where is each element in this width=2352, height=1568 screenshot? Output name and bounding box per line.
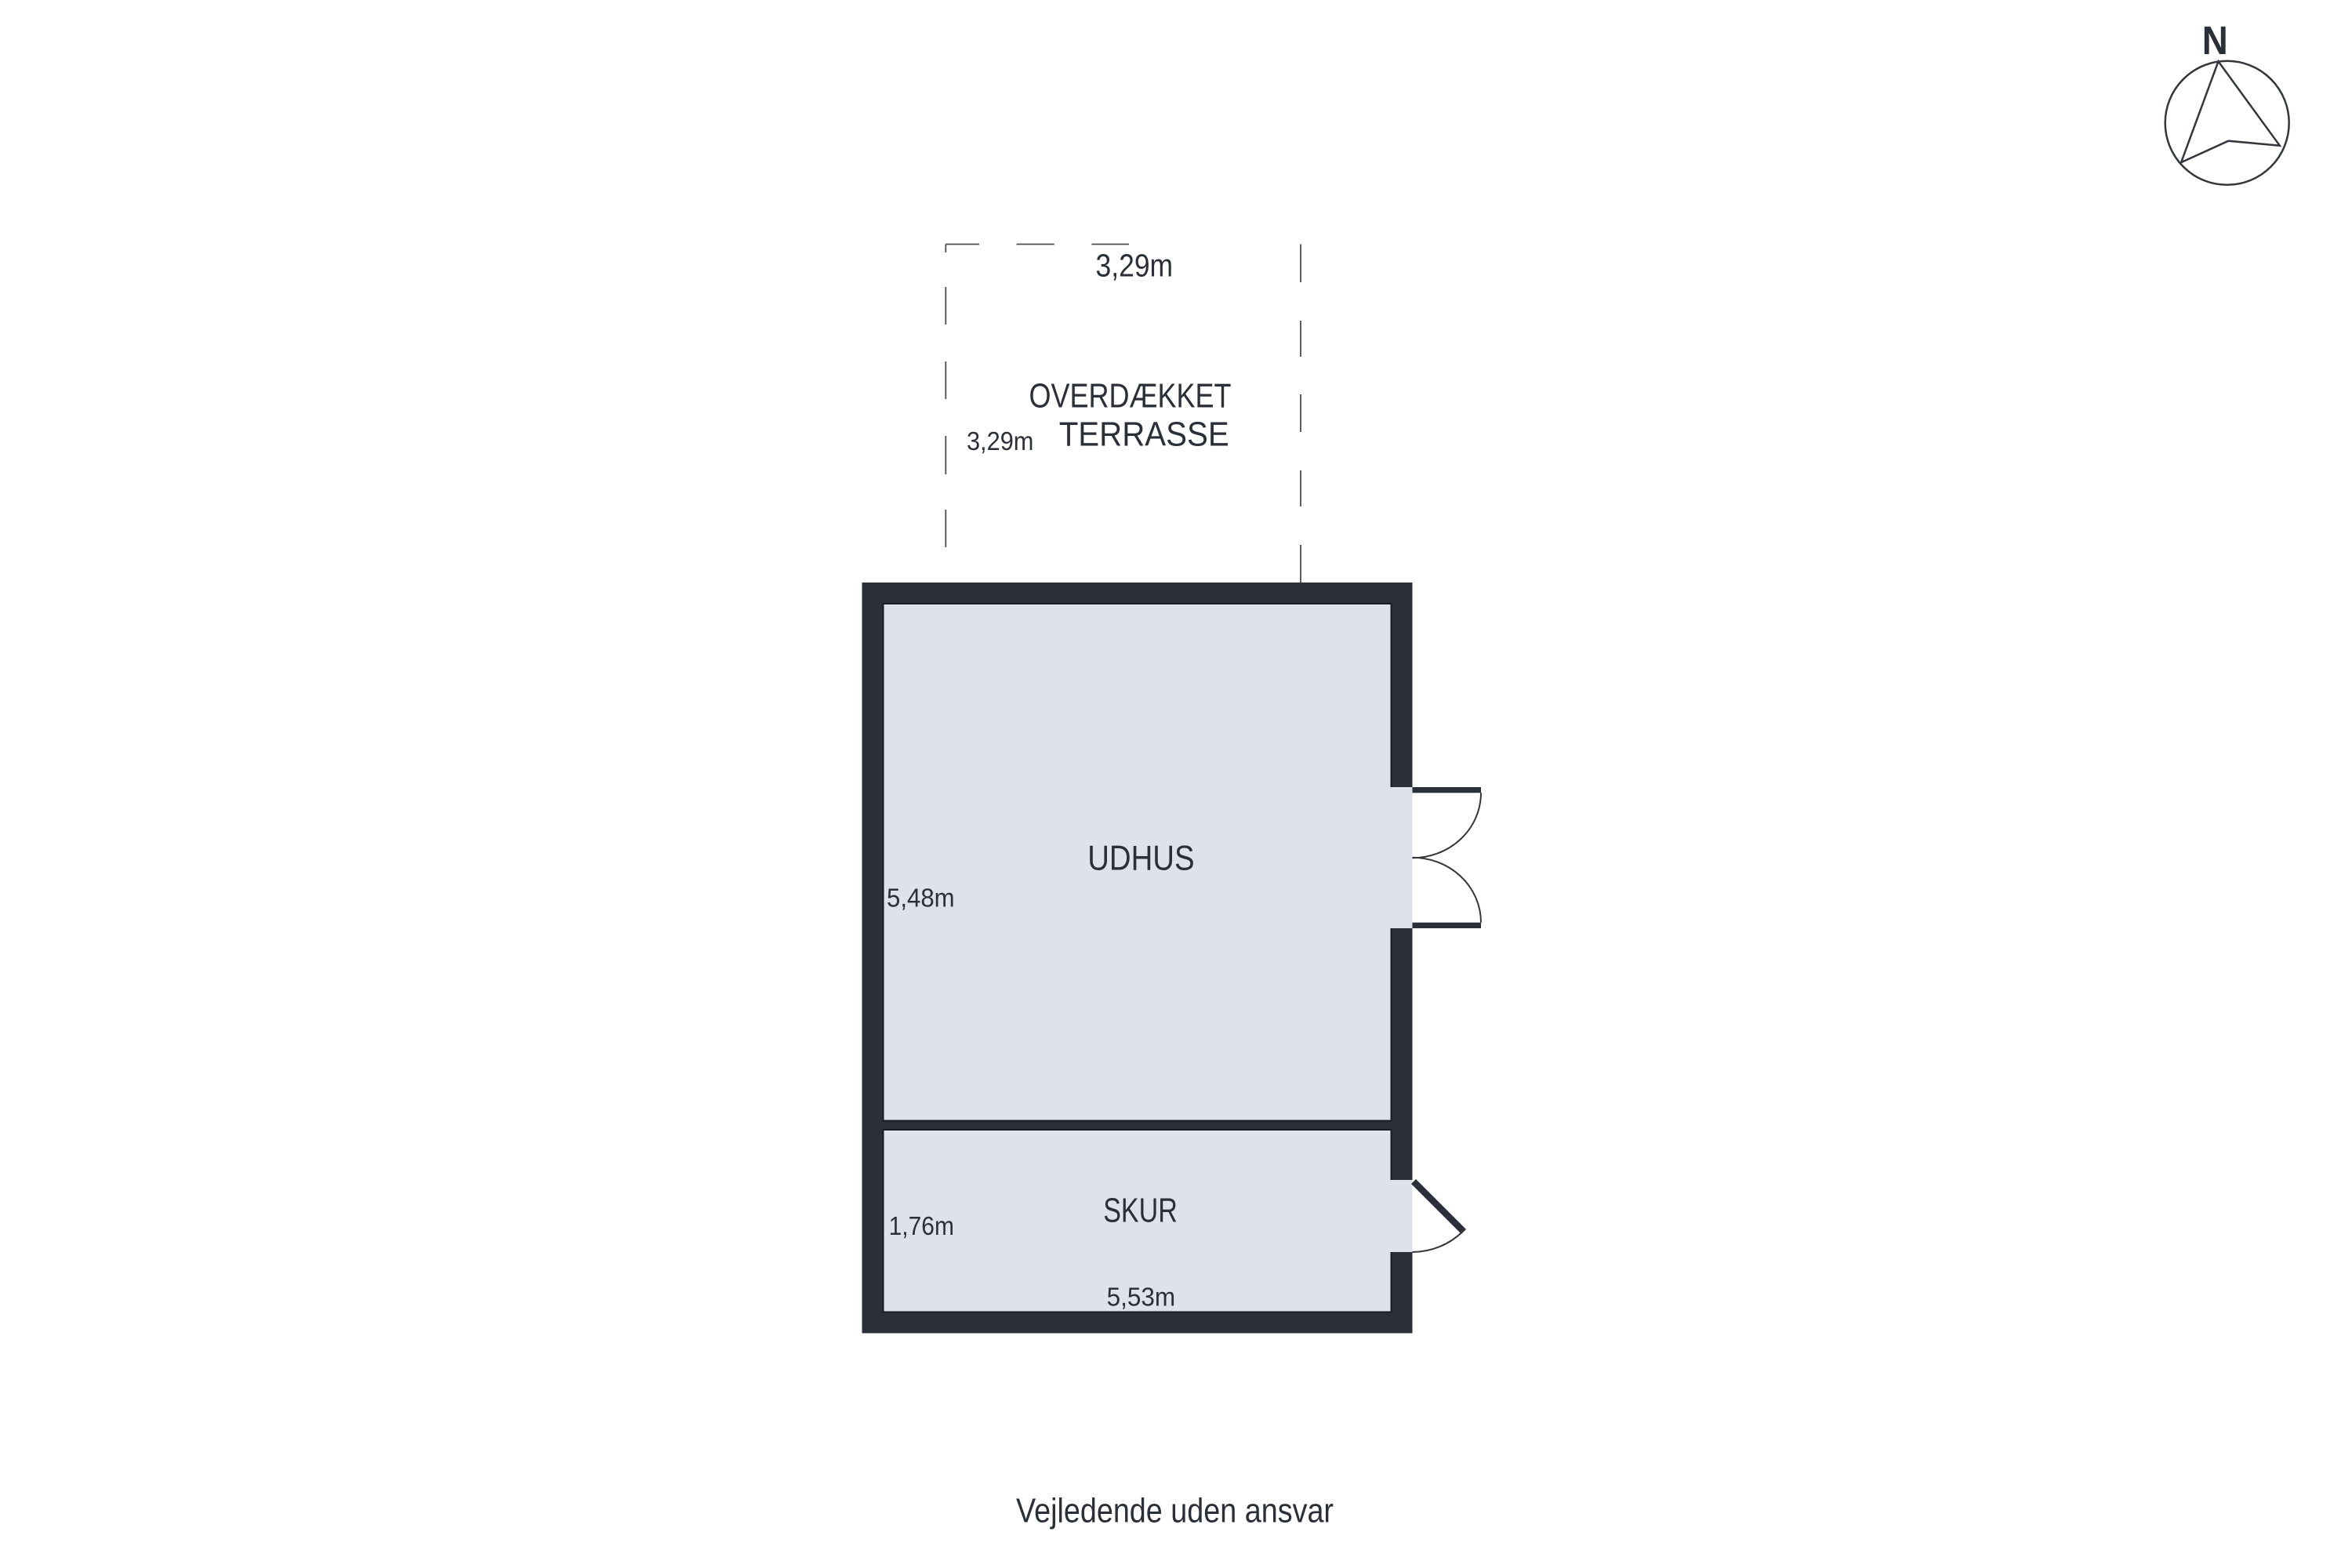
svg-text:5,53m: 5,53m (1107, 1283, 1176, 1312)
svg-text:TERRASSE: TERRASSE (1059, 416, 1229, 454)
svg-text:UDHUS: UDHUS (1087, 840, 1194, 878)
svg-text:3,29m: 3,29m (967, 427, 1034, 456)
svg-text:N: N (2202, 18, 2228, 63)
svg-text:SKUR: SKUR (1103, 1192, 1178, 1230)
svg-text:OVERDÆKKET: OVERDÆKKET (1029, 378, 1232, 416)
svg-text:1,76m: 1,76m (889, 1212, 954, 1241)
svg-text:3,29m: 3,29m (1096, 247, 1174, 283)
svg-text:5,48m: 5,48m (887, 884, 955, 913)
svg-text:Vejledende uden ansvar: Vejledende uden ansvar (1016, 1493, 1334, 1530)
